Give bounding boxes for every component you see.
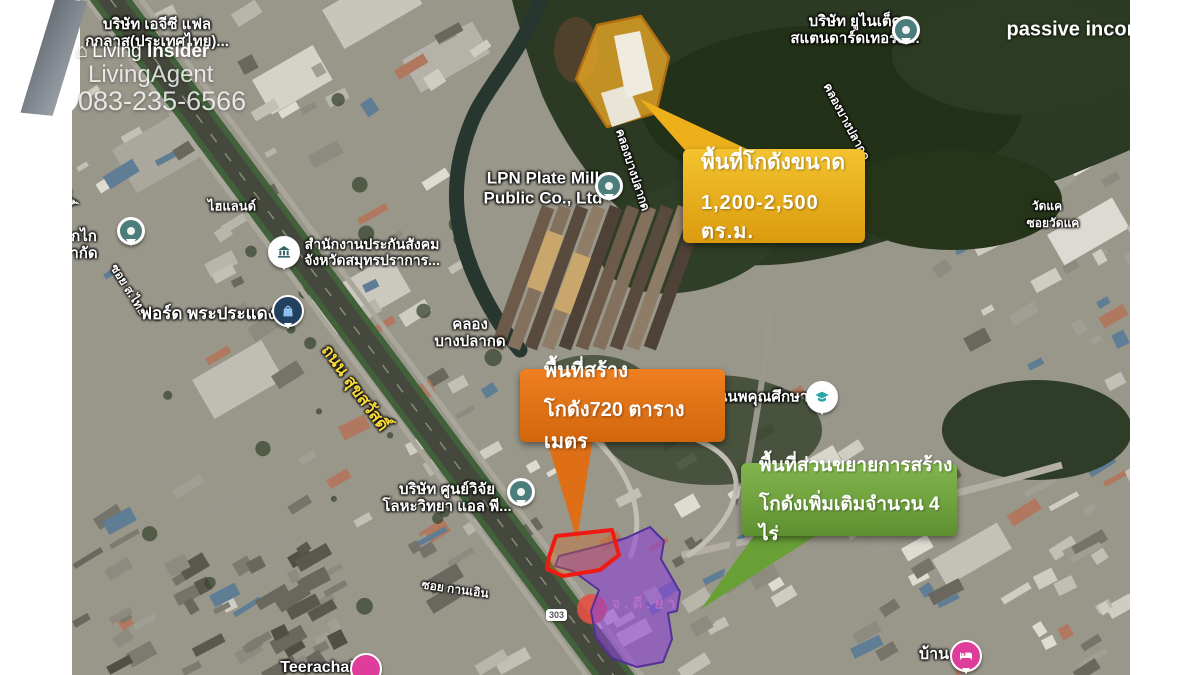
map-terrain: [72, 0, 1130, 675]
satellite-map[interactable]: [72, 0, 1130, 675]
real-estate-map-image: บริษัท เอจีซี แฟลกกลาส(ประเทศไทย)...บริษ…: [0, 0, 1200, 675]
watermark-card: [0, 0, 80, 118]
